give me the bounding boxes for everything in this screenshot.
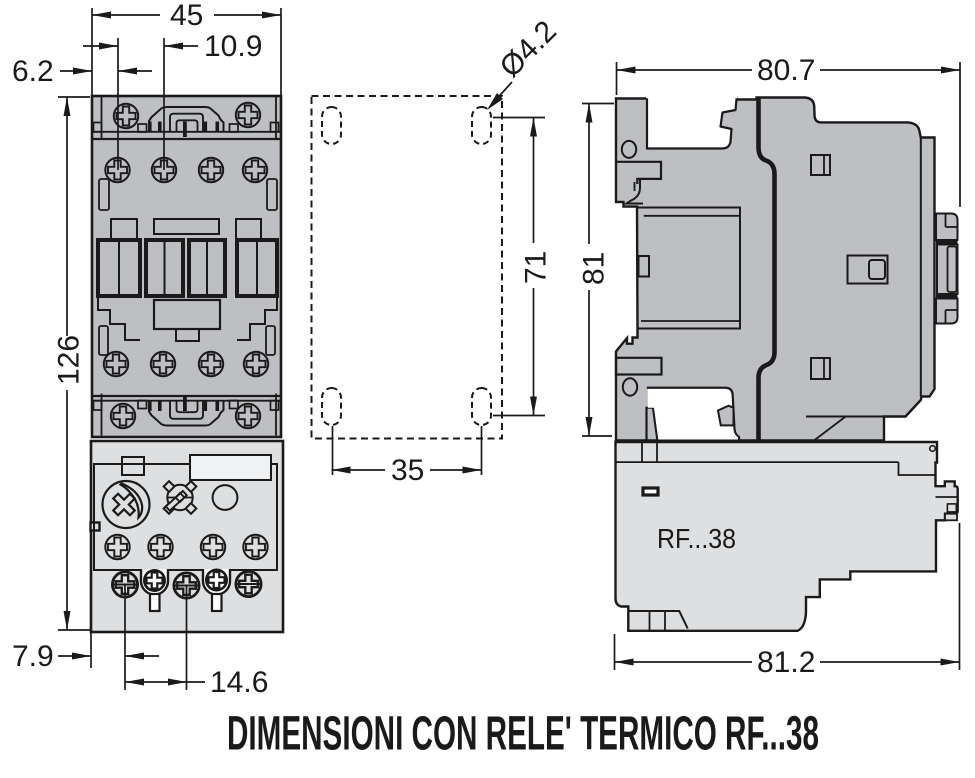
svg-text:81.2: 81.2 bbox=[757, 646, 815, 679]
svg-text:81: 81 bbox=[578, 252, 611, 285]
svg-text:71: 71 bbox=[520, 251, 553, 284]
svg-text:RF...38: RF...38 bbox=[657, 523, 736, 554]
svg-text:80.7: 80.7 bbox=[757, 54, 815, 87]
svg-text:DIMENSIONI CON RELE' TERMICO R: DIMENSIONI CON RELE' TERMICO RF...38 bbox=[227, 708, 819, 761]
svg-text:35: 35 bbox=[391, 454, 424, 487]
svg-text:7.9: 7.9 bbox=[12, 640, 54, 673]
svg-text:14.6: 14.6 bbox=[210, 666, 268, 699]
svg-text:10.9: 10.9 bbox=[204, 30, 262, 63]
svg-text:45: 45 bbox=[170, 0, 203, 32]
svg-text:126: 126 bbox=[53, 335, 86, 385]
svg-text:6.2: 6.2 bbox=[12, 55, 54, 88]
svg-text:Ø4.2: Ø4.2 bbox=[494, 15, 563, 84]
